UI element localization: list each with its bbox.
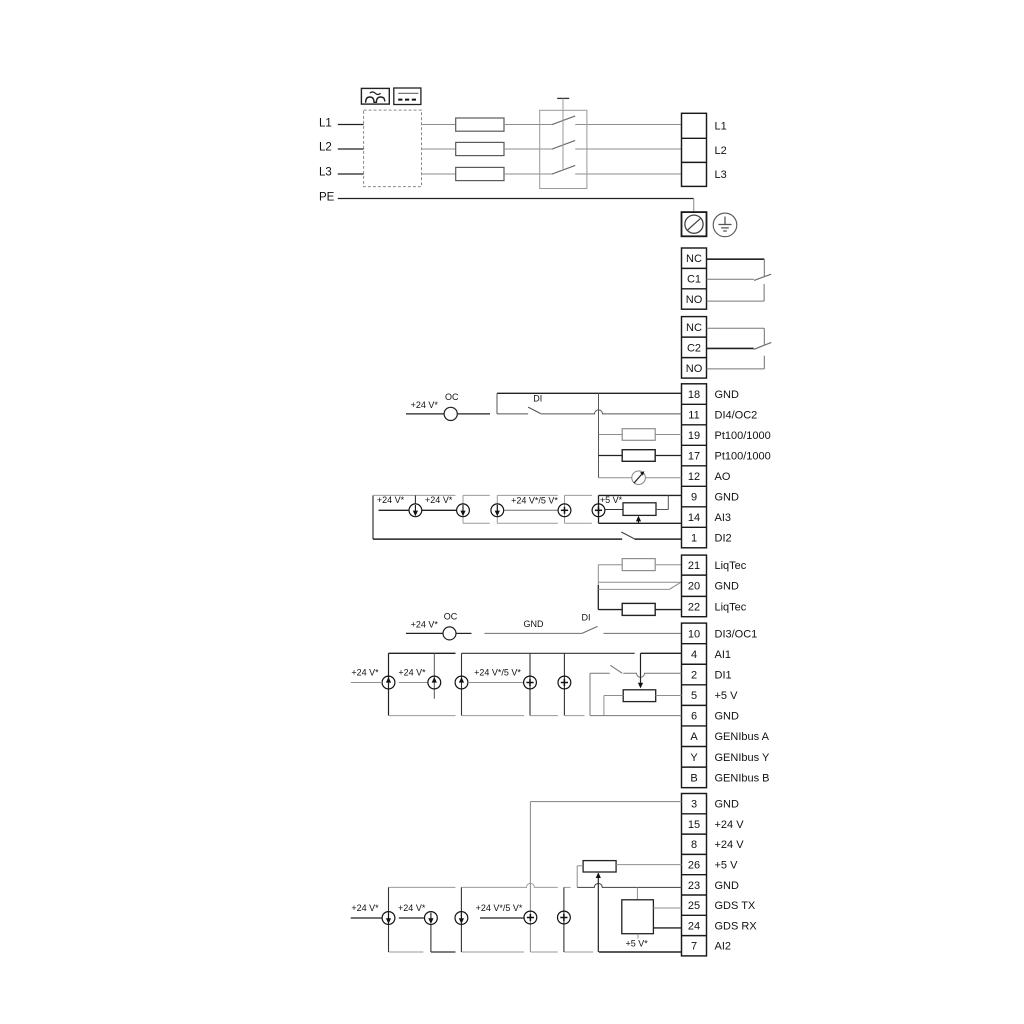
svg-text:OC: OC [444,612,458,622]
svg-text:Pt100/1000: Pt100/1000 [715,430,771,442]
svg-text:GENIbus A: GENIbus A [715,731,770,743]
svg-text:2: 2 [691,669,697,681]
svg-text:+5 V: +5 V [715,860,739,872]
svg-text:23: 23 [688,880,700,892]
svg-text:L2: L2 [319,142,332,154]
svg-text:17: 17 [688,451,700,463]
svg-text:9: 9 [691,492,697,504]
svg-text:14: 14 [688,512,700,524]
svg-text:22: 22 [688,602,700,614]
svg-text:GND: GND [715,711,740,723]
svg-text:DI4/OC2: DI4/OC2 [715,410,758,422]
svg-text:L3: L3 [715,169,727,181]
svg-text:+24 V*/5 V*: +24 V*/5 V* [474,668,521,678]
svg-text:19: 19 [688,430,700,442]
svg-text:GND: GND [715,799,740,811]
svg-text:DI: DI [533,394,542,404]
svg-text:Y: Y [690,752,698,764]
svg-text:GND: GND [715,880,740,892]
svg-text:GENIbus Y: GENIbus Y [715,752,770,764]
svg-text:L1: L1 [715,121,727,133]
svg-text:+24 V*: +24 V* [398,668,426,678]
svg-text:GND: GND [715,389,740,401]
svg-text:GND: GND [715,492,740,504]
svg-text:+24 V*/5 V*: +24 V*/5 V* [511,496,558,506]
svg-text:NO: NO [686,363,703,375]
svg-text:7: 7 [691,941,697,953]
svg-text:+5 V: +5 V [715,690,739,702]
svg-text:LiqTec: LiqTec [715,560,747,572]
svg-text:GND: GND [715,581,740,593]
svg-text:+24 V: +24 V [715,839,745,851]
svg-text:21: 21 [688,560,700,572]
svg-text:+24 V*: +24 V* [377,495,405,505]
svg-text:+24 V*: +24 V* [351,668,379,678]
svg-text:NC: NC [686,322,702,334]
svg-text:NO: NO [686,294,703,306]
svg-text:+24 V*: +24 V* [411,400,439,410]
svg-text:NC: NC [686,253,702,265]
svg-text:+24 V*/5 V*: +24 V*/5 V* [476,903,523,913]
svg-text:8: 8 [691,839,697,851]
svg-text:GDS RX: GDS RX [715,920,758,932]
svg-text:GND: GND [524,619,545,629]
svg-text:AI1: AI1 [715,649,732,661]
svg-text:C2: C2 [687,342,701,354]
svg-text:5: 5 [691,690,697,702]
svg-text:26: 26 [688,860,700,872]
svg-text:+24 V: +24 V [715,819,745,831]
svg-text:AI2: AI2 [715,941,732,953]
svg-text:11: 11 [688,410,699,422]
svg-text:L1: L1 [319,117,332,129]
svg-text:L3: L3 [319,166,332,178]
svg-text:10: 10 [688,628,700,640]
svg-text:DI2: DI2 [715,533,732,545]
svg-text:4: 4 [691,649,697,661]
svg-text:6: 6 [691,711,697,723]
svg-text:15: 15 [688,819,700,831]
svg-text:12: 12 [688,471,700,483]
svg-text:+24 V*: +24 V* [425,495,453,505]
svg-text:A: A [690,731,698,743]
svg-text:3: 3 [691,799,697,811]
svg-text:AO: AO [715,471,731,483]
svg-text:B: B [690,772,697,784]
svg-text:DI: DI [582,612,591,622]
svg-text:GENIbus B: GENIbus B [715,772,770,784]
svg-text:DI3/OC1: DI3/OC1 [715,628,758,640]
svg-text:Pt100/1000: Pt100/1000 [715,451,771,463]
svg-text:AI3: AI3 [715,512,732,524]
svg-text:OC: OC [445,392,459,402]
svg-text:+24 V*: +24 V* [398,903,426,913]
svg-text:1: 1 [691,533,697,545]
svg-text:+24 V*: +24 V* [411,620,439,630]
svg-text:+5 V*: +5 V* [600,495,623,505]
svg-text:+24 V*: +24 V* [351,903,379,913]
svg-text:+5 V*: +5 V* [626,939,649,949]
svg-text:20: 20 [688,581,700,593]
svg-text:PE: PE [319,191,335,203]
svg-text:18: 18 [688,389,700,401]
svg-text:25: 25 [688,900,700,912]
svg-text:DI1: DI1 [715,669,732,681]
svg-text:GDS TX: GDS TX [715,900,756,912]
svg-text:C1: C1 [687,274,701,286]
svg-text:24: 24 [688,920,700,932]
svg-text:L2: L2 [715,145,727,157]
svg-text:LiqTec: LiqTec [715,602,747,614]
